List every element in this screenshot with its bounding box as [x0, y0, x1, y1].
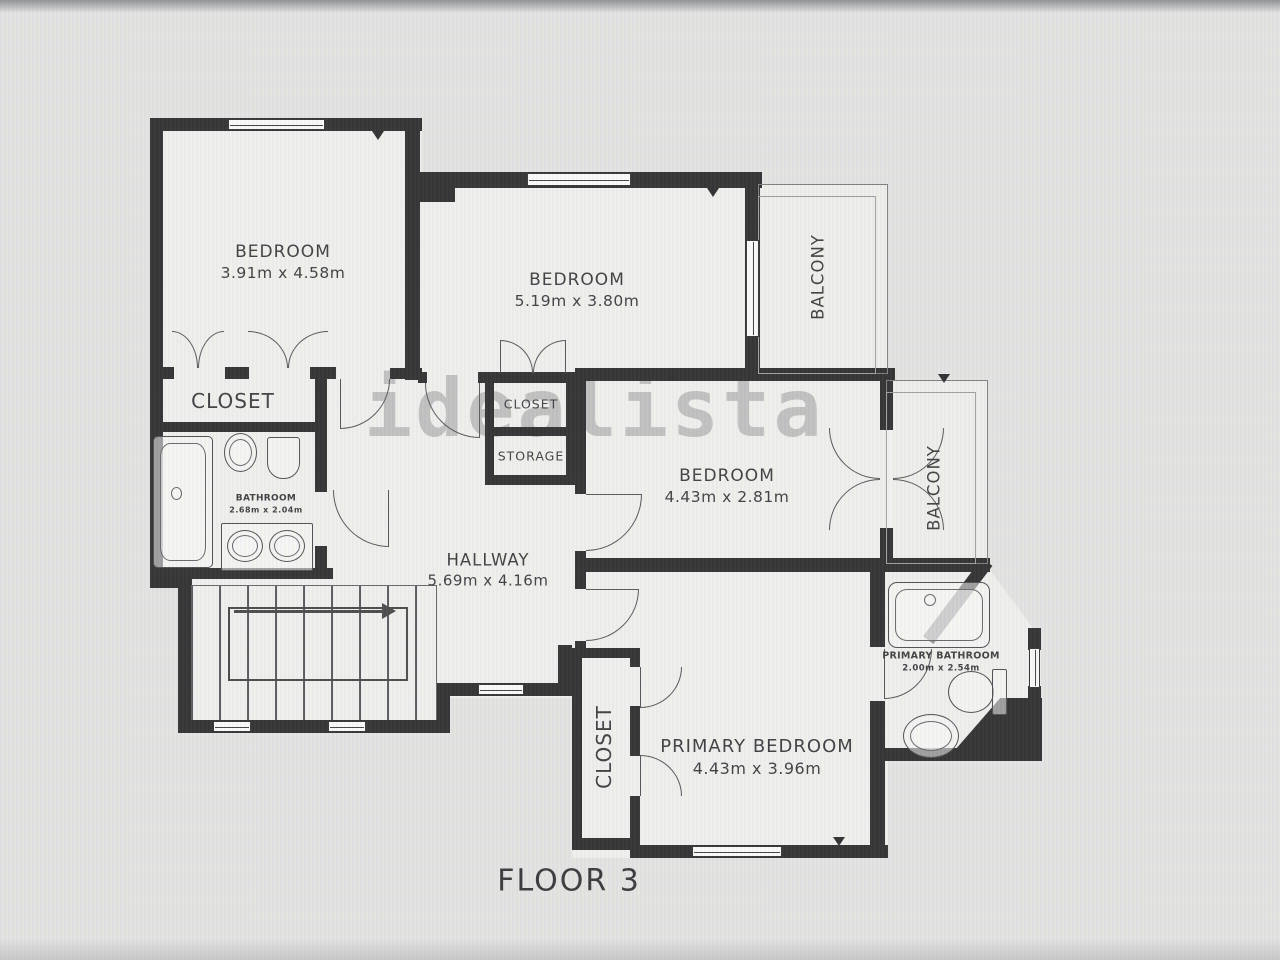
stairs-railing	[228, 607, 408, 681]
window	[228, 119, 325, 130]
floor-number-label: FLOOR 3	[497, 864, 641, 899]
window	[746, 240, 759, 337]
window	[478, 684, 524, 695]
closet-main-label: CLOSET	[191, 389, 275, 413]
window	[213, 721, 251, 732]
closet-small-label: CLOSET	[504, 397, 559, 412]
window	[527, 173, 631, 186]
bedroom3-label: BEDROOM 4.43m x 2.81m	[665, 466, 790, 506]
window	[328, 721, 366, 732]
balcony-top-label: BALCONY	[809, 234, 828, 320]
storage-label: STORAGE	[498, 449, 565, 464]
toilet-icon	[948, 671, 994, 713]
bedroom1-label: BEDROOM 3.91m x 4.58m	[221, 242, 346, 282]
primary-bathroom-label: PRIMARY BATHROOM 2.00m x 2.54m	[882, 651, 1000, 674]
drain-icon	[171, 487, 182, 500]
bidet-icon	[267, 437, 300, 479]
window	[1029, 648, 1040, 688]
stairs-direction-line	[234, 610, 382, 613]
bathroom-label: BATHROOM 2.68m x 2.04m	[229, 494, 302, 515]
window	[692, 846, 782, 857]
closet-primary-label: CLOSET	[592, 705, 616, 789]
stairs-direction-arrow	[382, 603, 396, 619]
floorplan-canvas: idealista	[0, 0, 1280, 960]
hallway-label: HALLWAY 5.69m x 4.16m	[428, 551, 549, 590]
bedroom2-label: BEDROOM 5.19m x 3.80m	[515, 270, 640, 310]
primary-bedroom-label: PRIMARY BEDROOM 4.43m x 3.96m	[660, 736, 854, 778]
balcony-mid-label: BALCONY	[925, 445, 944, 531]
